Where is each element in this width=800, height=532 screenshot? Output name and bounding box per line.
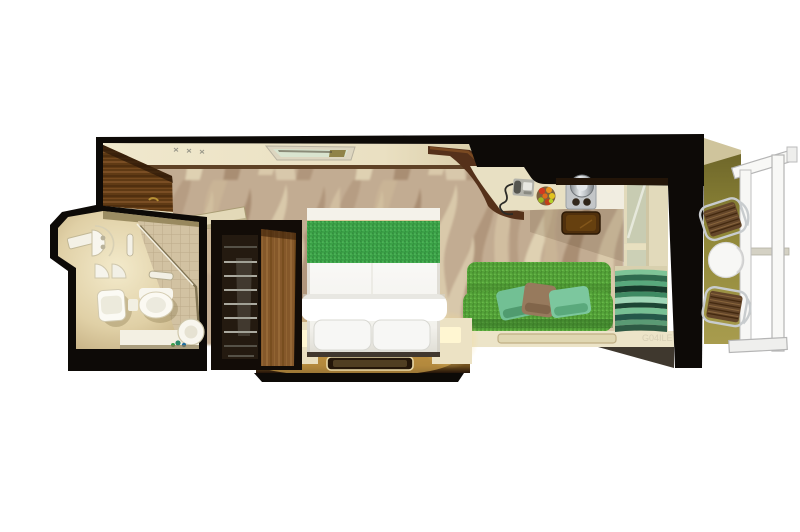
svg-text:G04ILE: G04ILE (642, 333, 673, 343)
